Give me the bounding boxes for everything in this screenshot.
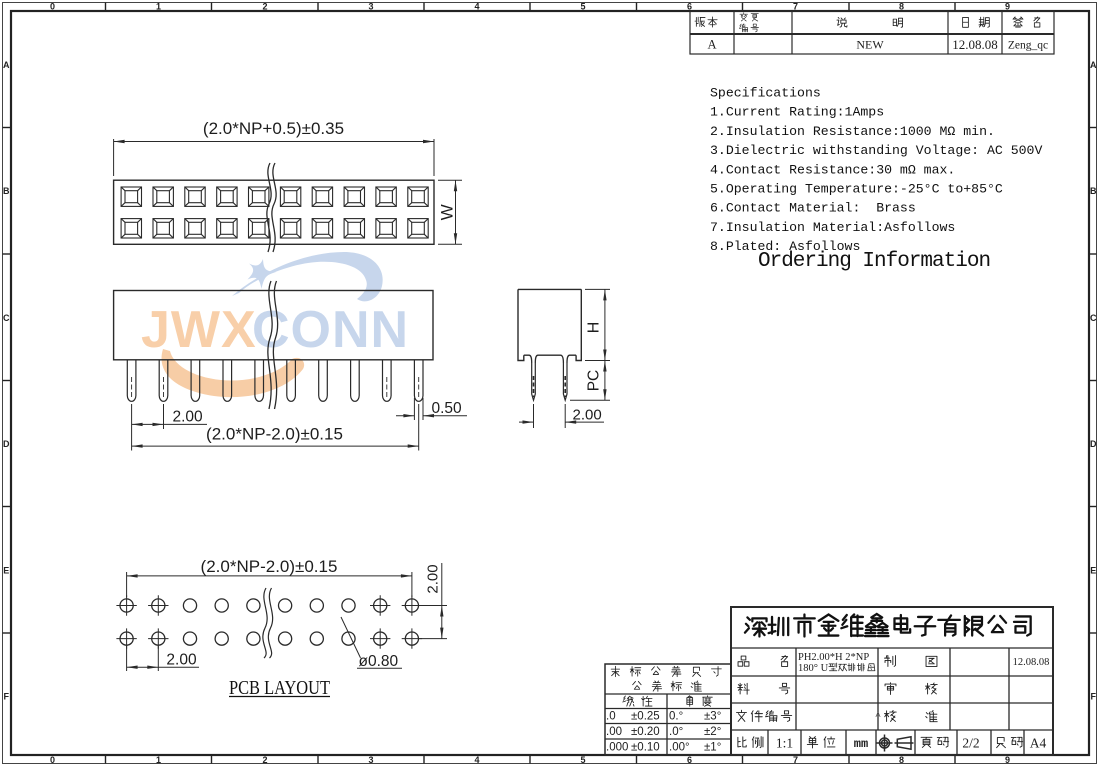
svg-text:F: F (1091, 692, 1097, 702)
svg-text:6: 6 (687, 2, 692, 12)
svg-text:1: 1 (156, 755, 161, 765)
svg-text:D: D (1090, 439, 1097, 449)
svg-text:2.Insulation Resistance:1000 M: 2.Insulation Resistance:1000 MΩ min. (710, 124, 995, 139)
svg-text:D: D (3, 439, 10, 449)
svg-text:E: E (3, 566, 9, 576)
svg-text:180° U: 180° U (798, 663, 829, 674)
svg-text:(2.0*NP-2.0)±0.15: (2.0*NP-2.0)±0.15 (206, 425, 343, 444)
svg-text:A: A (875, 710, 880, 719)
svg-text:9: 9 (1005, 2, 1010, 12)
svg-text:A4: A4 (1030, 736, 1047, 751)
svg-text:4: 4 (474, 2, 479, 12)
svg-text:PC: PC (586, 370, 603, 392)
svg-text:0.°: 0.° (669, 711, 683, 723)
svg-text:3.Dielectric withstanding Volt: 3.Dielectric withstanding Voltage: AC 50… (710, 143, 1042, 158)
svg-text:7: 7 (793, 755, 798, 765)
svg-text:F: F (4, 692, 10, 702)
svg-text:Zeng_qc: Zeng_qc (1008, 40, 1048, 52)
svg-text:±2°: ±2° (704, 726, 721, 738)
svg-text:.00: .00 (606, 726, 622, 738)
svg-text:E: E (1090, 566, 1096, 576)
svg-text:PH2.00*H 2*NP: PH2.00*H 2*NP (798, 652, 869, 663)
svg-text:5: 5 (580, 755, 585, 765)
svg-text:4.Contact Resistance:30 mΩ max: 4.Contact Resistance:30 mΩ max. (710, 162, 955, 177)
svg-text:2/2: 2/2 (962, 736, 979, 751)
svg-text:2.00: 2.00 (166, 652, 197, 669)
svg-text:±0.20: ±0.20 (631, 726, 660, 738)
svg-text:9: 9 (1005, 755, 1010, 765)
svg-text:(2.0*NP-2.0)±0.15: (2.0*NP-2.0)±0.15 (201, 557, 338, 576)
svg-text:Ordering Information: Ordering Information (758, 250, 990, 273)
svg-text:.000: .000 (606, 741, 628, 753)
svg-text:2: 2 (262, 755, 267, 765)
svg-text:1:1: 1:1 (776, 736, 793, 751)
svg-text:C: C (1090, 313, 1097, 323)
svg-text:12.08.08: 12.08.08 (1013, 657, 1050, 668)
svg-text:.0°: .0° (669, 726, 683, 738)
svg-text:NEW: NEW (856, 38, 884, 52)
svg-text:ø0.80: ø0.80 (359, 653, 399, 670)
svg-text:A: A (707, 38, 716, 52)
svg-text:A: A (1090, 60, 1097, 70)
svg-text:H: H (586, 322, 603, 334)
svg-text:W: W (438, 204, 457, 220)
svg-text:B: B (1090, 186, 1097, 196)
svg-text:C: C (3, 313, 10, 323)
svg-text:8: 8 (899, 2, 904, 12)
svg-text:2.00: 2.00 (425, 564, 442, 593)
svg-text:4: 4 (474, 755, 479, 765)
svg-text:1.Current Rating:1Amps: 1.Current Rating:1Amps (710, 105, 884, 120)
svg-text:(2.0*NP+0.5)±0.35: (2.0*NP+0.5)±0.35 (203, 119, 344, 138)
svg-text:±0.25: ±0.25 (631, 711, 660, 723)
svg-text:3: 3 (368, 2, 373, 12)
svg-text:5: 5 (580, 2, 585, 12)
svg-text:.0: .0 (606, 711, 616, 723)
svg-text:3: 3 (368, 755, 373, 765)
svg-text:2.00: 2.00 (173, 409, 204, 426)
svg-text:.00°: .00° (669, 741, 690, 753)
svg-text:JWX: JWX (141, 301, 257, 359)
svg-text:6: 6 (687, 755, 692, 765)
svg-text:1: 1 (156, 2, 161, 12)
svg-text:0: 0 (50, 2, 55, 12)
svg-text:12.08.08: 12.08.08 (952, 37, 998, 52)
svg-text:7: 7 (793, 2, 798, 12)
svg-text:2: 2 (262, 2, 267, 12)
svg-text:±3°: ±3° (704, 711, 721, 723)
svg-text:6.Contact Material: Brass: 6.Contact Material: Brass (710, 201, 916, 216)
svg-text:mm: mm (854, 737, 868, 751)
svg-text:0.50: 0.50 (432, 400, 463, 417)
svg-text:7.Insulation Material:Asfollow: 7.Insulation Material:Asfollows (710, 220, 955, 235)
svg-text:0: 0 (50, 755, 55, 765)
svg-text:5.Operating Temperature:-25°C: 5.Operating Temperature:-25°C to+85°C (710, 182, 1003, 197)
svg-text:2.00: 2.00 (573, 407, 602, 424)
svg-text:A: A (3, 60, 10, 70)
svg-text:8: 8 (899, 755, 904, 765)
svg-text:±0.10: ±0.10 (631, 741, 660, 753)
svg-text:±1°: ±1° (704, 741, 721, 753)
svg-text:Specifications: Specifications (710, 86, 821, 101)
svg-text:B: B (3, 186, 10, 196)
